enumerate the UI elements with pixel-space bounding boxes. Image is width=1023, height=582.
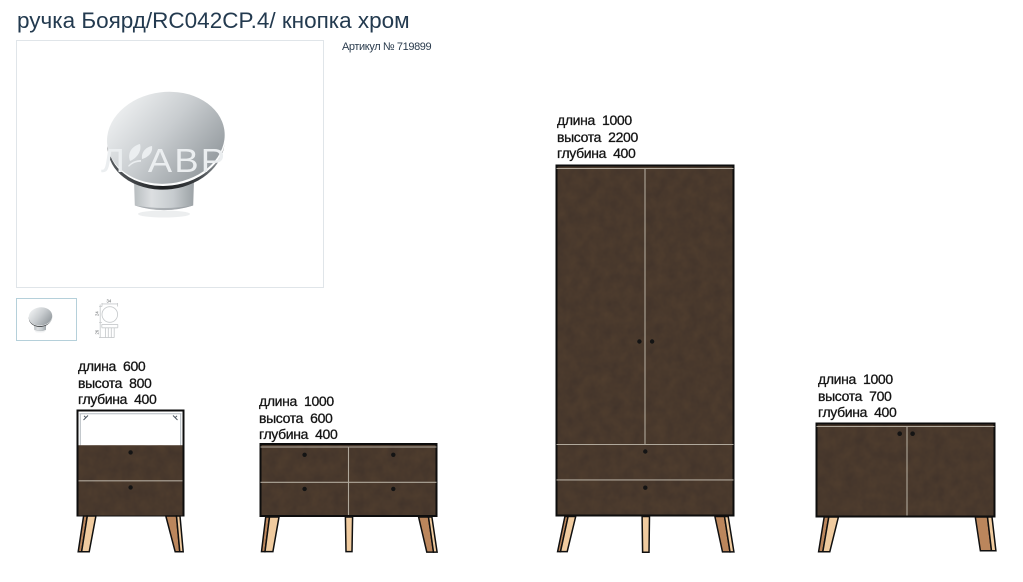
svg-text:24: 24 [95,311,100,316]
svg-text:34: 34 [107,299,112,304]
svg-text:26: 26 [95,329,100,334]
